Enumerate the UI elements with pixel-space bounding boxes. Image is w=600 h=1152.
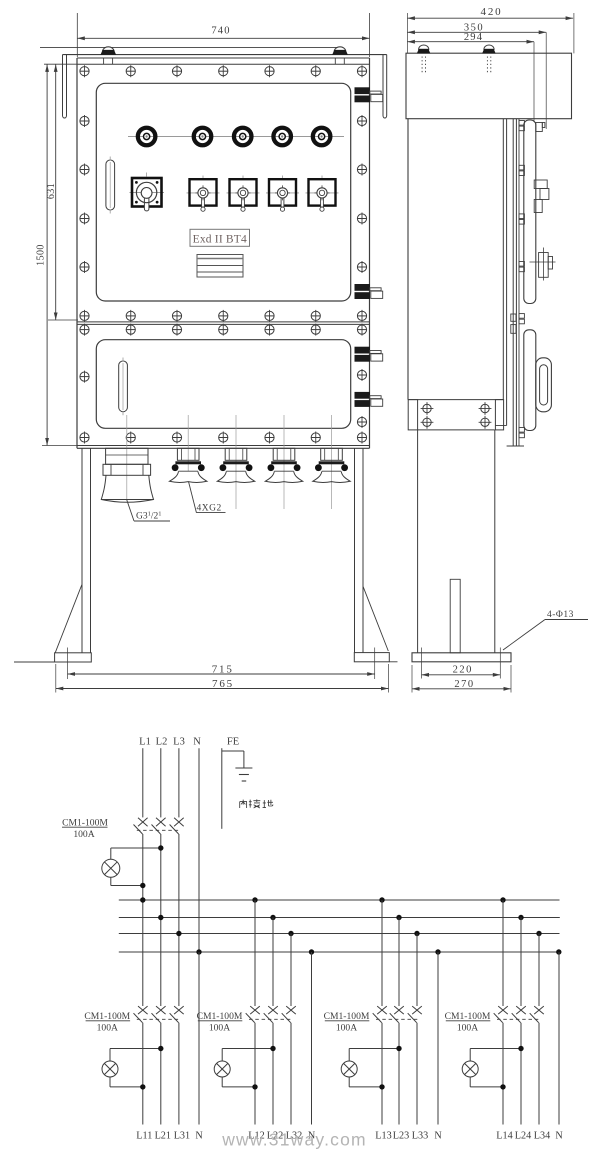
svg-text:100A: 100A (209, 1023, 230, 1034)
svg-text:L3: L3 (173, 737, 185, 748)
svg-text:100A: 100A (97, 1023, 118, 1034)
svg-text:L23: L23 (393, 1131, 409, 1142)
svg-text:Exd II BT4: Exd II BT4 (193, 233, 247, 245)
svg-text:N: N (555, 1131, 563, 1142)
svg-text:L1: L1 (139, 737, 151, 748)
svg-text:L13: L13 (375, 1131, 391, 1142)
svg-text:L14: L14 (496, 1131, 512, 1142)
svg-text:420: 420 (481, 6, 503, 18)
svg-text:4-Φ13: 4-Φ13 (547, 610, 574, 620)
svg-text:L33: L33 (412, 1131, 428, 1142)
svg-text:715: 715 (212, 663, 234, 675)
svg-text:L2: L2 (156, 737, 168, 748)
svg-text:L11: L11 (136, 1131, 152, 1142)
svg-text:220: 220 (453, 664, 473, 675)
svg-text:100A: 100A (336, 1023, 357, 1034)
svg-text:www.31way.com: www.31way.com (221, 1130, 367, 1150)
svg-text:4XG2: 4XG2 (197, 503, 222, 513)
svg-text:100A: 100A (457, 1023, 478, 1034)
svg-text:270: 270 (454, 679, 474, 690)
svg-text:N: N (434, 1131, 442, 1142)
svg-text:N: N (195, 1131, 203, 1142)
svg-text:L31: L31 (174, 1131, 190, 1142)
svg-text:N: N (193, 737, 201, 748)
svg-text:L21: L21 (155, 1131, 171, 1142)
svg-text:1500: 1500 (36, 244, 47, 266)
svg-text:631: 631 (46, 183, 57, 199)
svg-text:FE: FE (227, 737, 239, 748)
svg-text:100A: 100A (73, 829, 94, 840)
svg-text:L24: L24 (515, 1131, 531, 1142)
svg-text:765: 765 (212, 678, 234, 690)
svg-text:L34: L34 (534, 1131, 550, 1142)
svg-text:740: 740 (211, 26, 230, 37)
